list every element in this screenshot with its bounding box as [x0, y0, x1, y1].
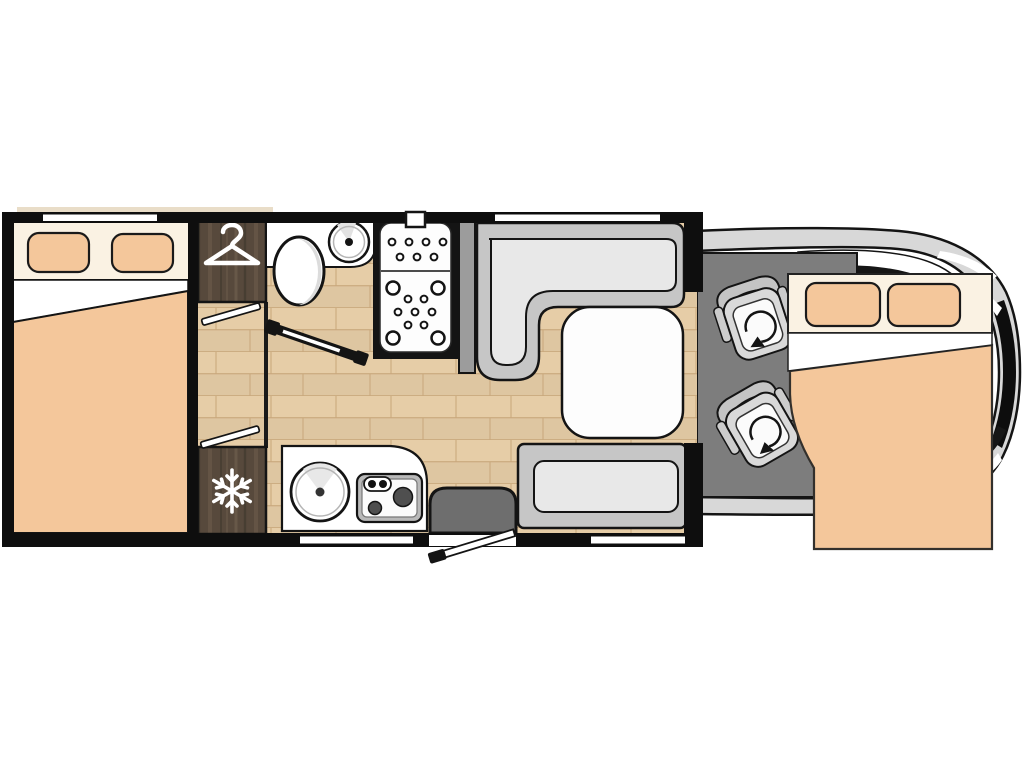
entry-step	[430, 488, 516, 533]
wall-left	[2, 212, 14, 547]
fridge	[198, 447, 266, 534]
duvet	[790, 345, 992, 549]
floor-plan-stage	[0, 0, 1024, 768]
window	[43, 215, 157, 222]
side-bench-cushion	[534, 461, 678, 512]
toilet	[274, 237, 324, 305]
rear-bed	[13, 222, 188, 533]
pillow	[888, 284, 960, 326]
drop-down-bed	[788, 274, 992, 549]
window	[591, 537, 685, 544]
shower	[373, 216, 458, 359]
pillow	[806, 283, 880, 326]
kitchen	[282, 446, 427, 531]
motorhome-floor-plan	[0, 0, 1024, 768]
window	[300, 537, 413, 544]
washbasin	[329, 221, 369, 262]
pillow	[28, 233, 89, 272]
kitchen-sink	[291, 463, 349, 521]
window	[495, 215, 660, 222]
shower-notch	[406, 212, 425, 227]
wall-post-top-right	[684, 212, 703, 292]
hob	[357, 474, 422, 522]
wall-bedroom	[188, 217, 198, 535]
duvet	[13, 291, 188, 533]
dinette-table	[562, 307, 683, 438]
wardrobe	[198, 217, 266, 302]
pillow	[112, 234, 173, 272]
wall-post-bottom-right	[684, 443, 703, 547]
dinette-partition	[459, 221, 475, 373]
